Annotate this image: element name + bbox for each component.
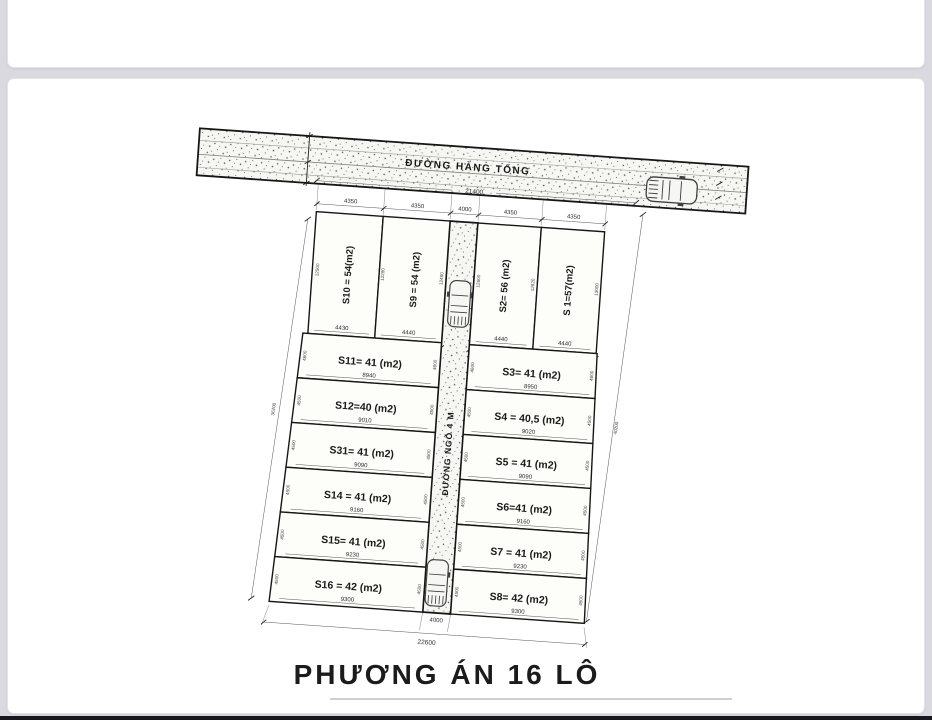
main-road: ĐƯỜNG HÀNG TỔNG 21400 [196,124,748,216]
frontage-dim: 4350 [504,210,518,217]
plot-width-dim: 9300 [511,609,525,616]
plot-depth-dim: 4500 [587,415,593,426]
plot-width-dim: 9300 [340,597,354,604]
plot-width-dim: 8950 [524,384,538,391]
plot-depth-dim: 13000 [594,282,600,296]
plot-depth-dim: 4500 [584,460,590,471]
plot-width-dim: 9020 [522,429,536,436]
top-page-card [7,0,925,68]
plot-depth-dim: 4500 [291,439,297,450]
plot-width-dim: 9160 [350,507,364,514]
plot-depth-dim: 4500 [416,584,422,595]
outer-dim-label: 36200 [270,402,277,416]
plot-front-dim: 4440 [494,336,508,343]
plot-depth-dim: 4500 [463,452,469,463]
total-width-dim: 22600 [417,639,436,647]
plot-depth-dim: 4500 [420,539,426,550]
plot-depth-dim: 4500 [285,484,291,495]
plot-s1: S 1=57(m2) 13000 4440 [533,227,605,353]
frontage-dim: 4350 [567,214,581,221]
frontage-dim: 4000 [458,207,472,214]
plot-depth-dim: 12460 [439,272,445,286]
drawing-svg: ĐƯỜNG HÀNG TỔNG 21400 [0,78,932,714]
plot-width-dim: 9230 [346,552,360,559]
plot-depth-dim: 4500 [426,449,432,460]
alley-bottom-dim: 4000 [429,618,443,625]
plot-width-dim: 9160 [516,519,530,526]
plan-title: PHƯƠNG ÁN 16 LÔ [294,658,601,690]
plot-front-dim: 4440 [558,341,572,348]
plot-depth-dim: 4500 [296,395,302,406]
plot-depth-dim: 4600 [432,359,438,370]
plot-depth-dim: 4500 [580,550,586,561]
plot-depth-dim: 4500 [582,505,588,516]
plot-depth-dim: 4500 [466,407,472,418]
frontage-dim: 4350 [344,199,358,206]
plot-depth-dim: 4500 [460,496,466,507]
plot-depth-dim: 12500 [314,263,320,277]
plot-s8: S8= 42 (m2) 4500 4500 9300 [451,569,588,623]
outer-dim-label: 40200 [613,421,620,435]
plot-depth-dim: 4500 [423,494,429,505]
plot-depth-dim: 4500 [578,595,584,606]
plot-depth-dim: 4600 [589,370,595,381]
plot-depth-dim: 12820 [530,278,536,292]
site-plan-group: ĐƯỜNG HÀNG TỔNG 21400 [165,124,749,666]
window-bottom-edge [0,716,932,720]
plot-front-dim: 4430 [335,325,349,332]
plot-depth-dim: 4500 [457,541,463,552]
plot-depth-dim: 4600 [302,350,308,361]
plot-s9: S9 = 54 (m2) 12280 12460 4440 [375,216,450,342]
plot-s2: S2= 56 (m2) 12600 12820 4440 [469,223,541,349]
frontage-dim: 4350 [411,203,425,210]
plot-s10: S10 = 54(m2) 12500 4430 [308,212,383,338]
plot-width-dim: 9090 [518,474,532,481]
plot-depth-dim: 12280 [380,267,386,281]
plot-depth-dim: 4500 [429,404,435,415]
plot-width-dim: 9230 [513,564,527,571]
plot-depth-dim: 4600 [470,362,476,373]
plot-width-dim: 9010 [358,418,372,425]
plot-front-dim: 4440 [402,330,416,337]
plot-width-dim: 9090 [354,462,368,469]
plot-depth-dim: 12600 [475,274,481,288]
plot-depth-dim: 4500 [454,586,460,597]
plot-depth-dim: 4500 [274,574,280,585]
plot-width-dim: 8940 [362,373,376,380]
plot-depth-dim: 4500 [279,529,285,540]
main-road-length-dim: 21400 [465,188,484,196]
